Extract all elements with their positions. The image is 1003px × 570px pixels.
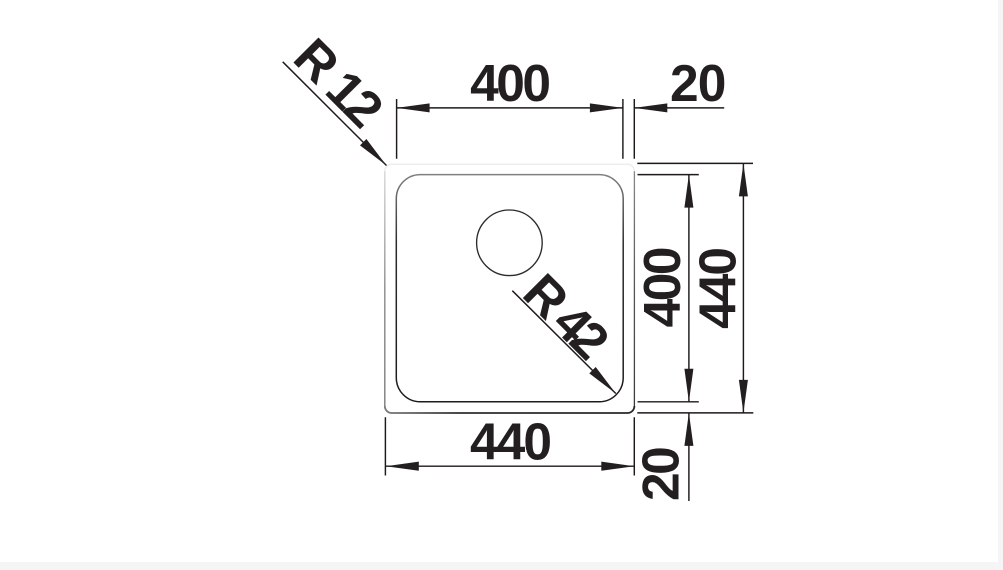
svg-text:440: 440: [689, 249, 747, 329]
svg-text:20: 20: [632, 448, 690, 501]
svg-text:20: 20: [670, 54, 725, 112]
svg-text:400: 400: [470, 54, 549, 112]
svg-text:440: 440: [470, 413, 550, 471]
svg-text:R 42: R 42: [513, 262, 620, 369]
svg-text:400: 400: [633, 248, 691, 327]
svg-text:R 12: R 12: [283, 27, 393, 137]
